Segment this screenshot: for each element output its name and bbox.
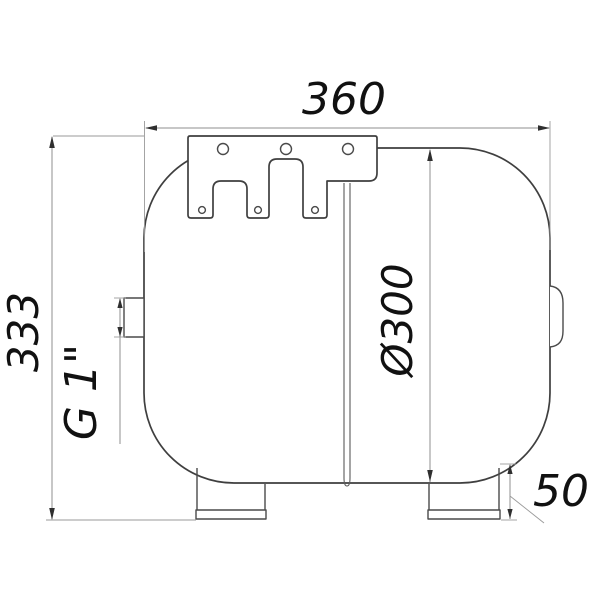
bracket-hole-small-3 xyxy=(312,207,319,214)
bracket-hole-large-2 xyxy=(281,144,292,155)
dim-thread-connection: G 1" xyxy=(56,298,126,444)
arrow-up-icon xyxy=(49,136,55,148)
arrow-left-icon xyxy=(145,125,157,131)
bracket-hole-large-3 xyxy=(343,144,354,155)
label-thread: G 1" xyxy=(56,344,107,440)
bracket-hole-large-1 xyxy=(218,144,229,155)
bracket-hole-small-1 xyxy=(199,207,206,214)
arrow-down-icon xyxy=(49,508,55,520)
pressure-tank-drawing: 360 333 Ø300 G 1" 50 xyxy=(0,0,600,600)
label-diameter: Ø300 xyxy=(373,263,422,378)
arrow-up-icon xyxy=(117,298,122,308)
dim-foot-height: 50 xyxy=(500,464,589,523)
arrow-right-icon xyxy=(538,125,550,131)
left-foot-base-plate xyxy=(196,510,266,519)
label-foot-height: 50 xyxy=(533,466,589,517)
right-foot-base-plate xyxy=(428,510,500,519)
drawing-canvas: 360 333 Ø300 G 1" 50 xyxy=(0,0,600,600)
label-overall-height: 333 xyxy=(0,292,48,372)
inlet-port xyxy=(124,298,144,337)
rear-boss xyxy=(550,286,563,347)
label-overall-width: 360 xyxy=(302,74,386,125)
arrow-down-icon xyxy=(117,327,122,337)
arrow-down-icon xyxy=(507,509,512,519)
bracket-hole-small-2 xyxy=(255,207,262,214)
